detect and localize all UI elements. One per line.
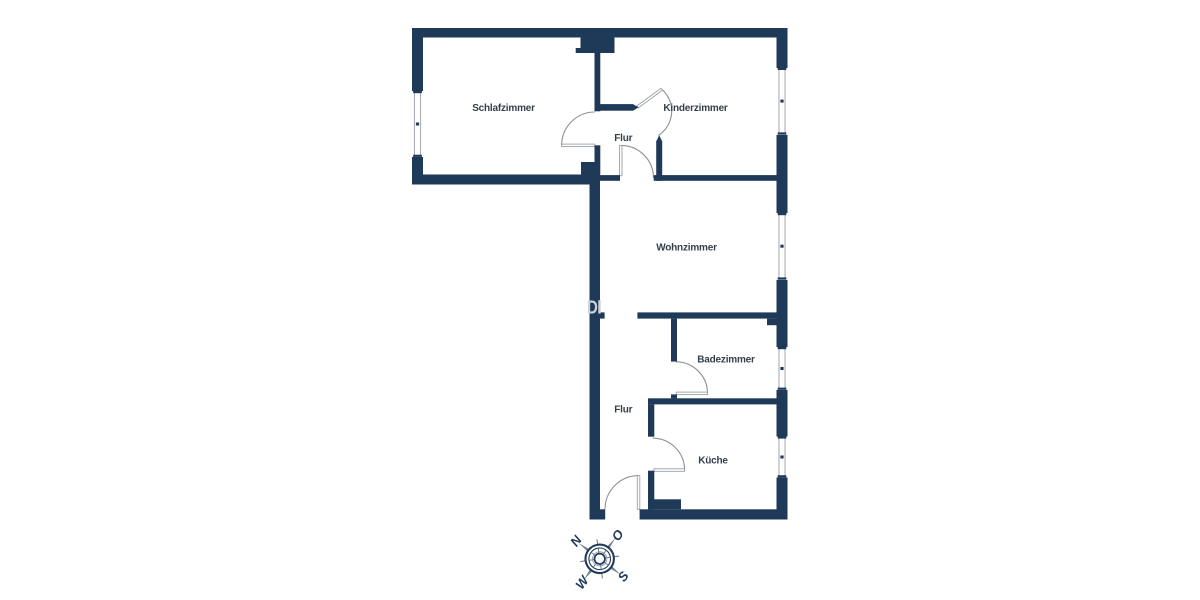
svg-text:Flur: Flur xyxy=(614,133,632,144)
svg-text:Badezimmer: Badezimmer xyxy=(697,355,755,366)
svg-text:Schlafzimmer: Schlafzimmer xyxy=(472,103,535,114)
svg-text:Küche: Küche xyxy=(698,456,728,467)
svg-text:Wohnzimmer: Wohnzimmer xyxy=(656,242,717,253)
svg-text:Kinderzimmer: Kinderzimmer xyxy=(663,103,728,114)
svg-text:D: D xyxy=(587,297,598,317)
svg-text:Flur: Flur xyxy=(614,404,632,415)
